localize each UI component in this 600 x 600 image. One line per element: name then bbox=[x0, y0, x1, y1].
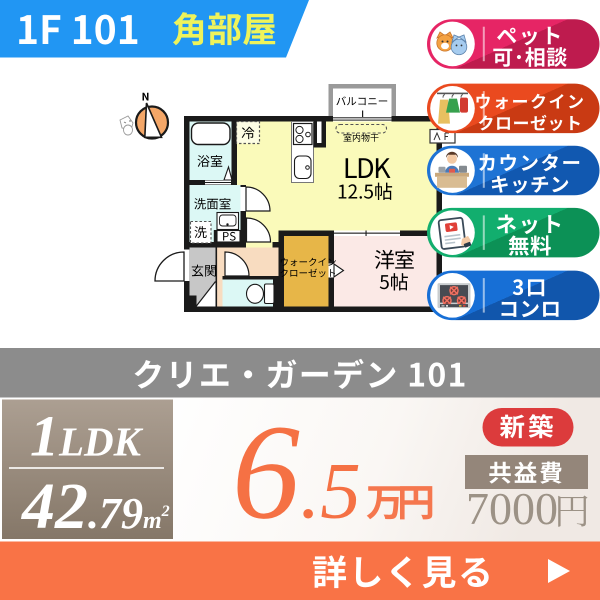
svg-text:7000: 7000 bbox=[466, 483, 558, 534]
